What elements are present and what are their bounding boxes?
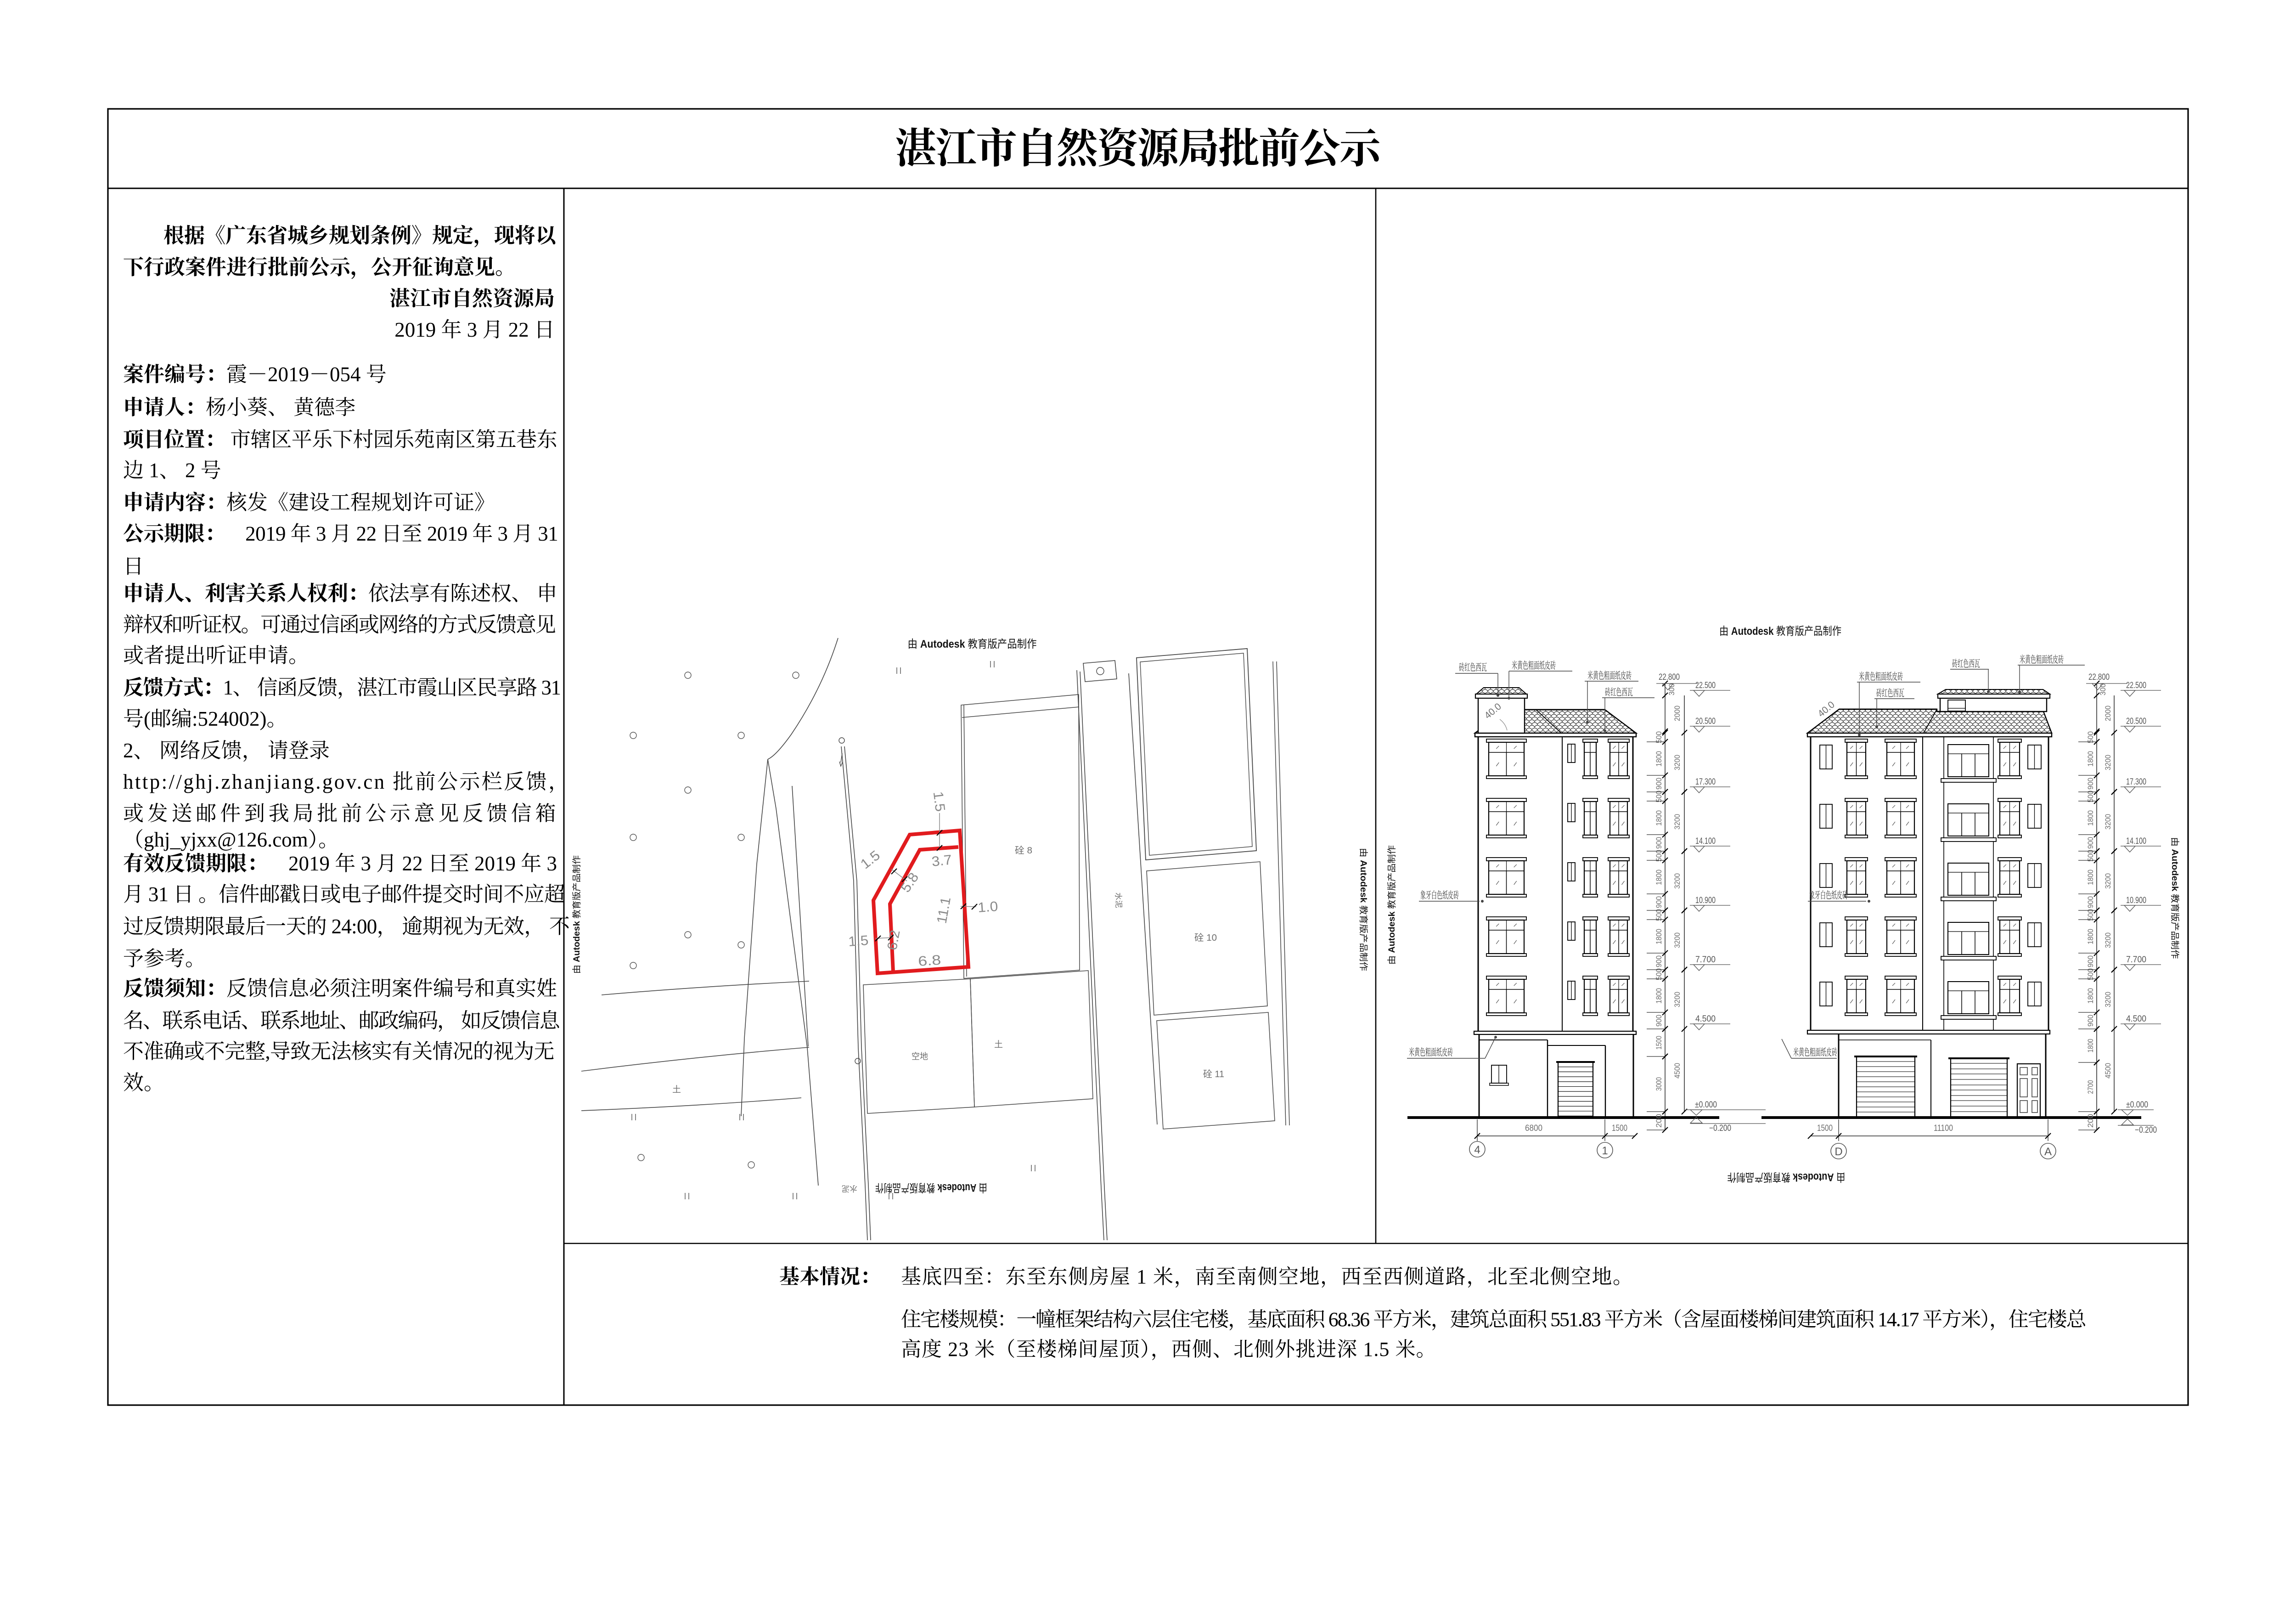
svg-text:由 Autodesk 教育版产品制作: 由 Autodesk 教育版产品制作: [1387, 845, 1397, 965]
svg-text:500: 500: [1654, 731, 1663, 743]
svg-text:由 Autodesk 教育版产品制作: 由 Autodesk 教育版产品制作: [1358, 848, 1368, 971]
svg-text:由 Autodesk 教育版产品制作: 由 Autodesk 教育版产品制作: [1719, 625, 1841, 638]
svg-text:300: 300: [2099, 683, 2107, 695]
svg-text:土: 土: [994, 1039, 1003, 1050]
svg-text:−0.200: −0.200: [2135, 1125, 2157, 1135]
svg-text:3000: 3000: [1654, 1077, 1663, 1091]
svg-text:17.300: 17.300: [1695, 777, 1716, 787]
svg-text:22.500: 22.500: [1695, 681, 1716, 690]
svg-text:空地: 空地: [912, 1051, 928, 1062]
svg-text:由 Autodesk 教育版产品制作: 由 Autodesk 教育版产品制作: [875, 1181, 987, 1194]
svg-text:砖红色西瓦: 砖红色西瓦: [1952, 658, 1980, 669]
svg-text:500: 500: [1654, 909, 1663, 921]
svg-text:米黄色粗面纸皮砖: 米黄色粗面纸皮砖: [1793, 1047, 1837, 1058]
svg-text:土: 土: [672, 1084, 681, 1095]
svg-text:1500: 1500: [1817, 1124, 1833, 1133]
svg-text:3200: 3200: [1673, 992, 1682, 1007]
svg-text:3200: 3200: [2104, 992, 2112, 1007]
svg-text:22.500: 22.500: [2126, 681, 2146, 690]
svg-text:1800: 1800: [2086, 810, 2095, 826]
svg-text:2000: 2000: [2104, 706, 2112, 721]
svg-text:1800: 1800: [2086, 870, 2095, 885]
svg-text:由 Autodesk 教育版产品制作: 由 Autodesk 教育版产品制作: [1728, 1171, 1846, 1183]
svg-text:1800: 1800: [1654, 929, 1663, 944]
svg-text:1.5: 1.5: [930, 791, 948, 813]
svg-text:7.700: 7.700: [1695, 955, 1716, 965]
svg-text:2700: 2700: [2086, 1080, 2095, 1094]
svg-text:1: 1: [1602, 1145, 1608, 1157]
svg-text:500: 500: [2086, 909, 2095, 921]
svg-text:20.500: 20.500: [1695, 717, 1716, 726]
svg-text:象牙白色纸皮砖: 象牙白色纸皮砖: [1420, 890, 1459, 901]
svg-text:3200: 3200: [2104, 932, 2112, 948]
svg-text:900: 900: [2086, 1015, 2095, 1027]
svg-text:500: 500: [1654, 850, 1663, 862]
svg-text:4: 4: [1474, 1144, 1480, 1156]
svg-text:900: 900: [1654, 837, 1663, 849]
svg-text:500: 500: [2086, 968, 2095, 980]
svg-text:200: 200: [2086, 1114, 2095, 1128]
svg-text:砖红色西瓦: 砖红色西瓦: [1459, 662, 1487, 673]
svg-text:±0.000: ±0.000: [1695, 1100, 1717, 1110]
svg-text:3200: 3200: [2104, 755, 2112, 770]
svg-text:1.5: 1.5: [858, 847, 883, 872]
svg-text:10.900: 10.900: [1695, 896, 1716, 905]
svg-text:3200: 3200: [2104, 873, 2112, 889]
svg-text:6.2: 6.2: [884, 929, 903, 951]
svg-text:砖红色西瓦: 砖红色西瓦: [1605, 687, 1633, 698]
svg-text:由 Autodesk 教育版产品制作: 由 Autodesk 教育版产品制作: [908, 638, 1037, 650]
svg-text:10.900: 10.900: [2126, 896, 2146, 905]
svg-text:14.100: 14.100: [1695, 836, 1716, 846]
svg-text:500: 500: [2086, 791, 2095, 802]
svg-text:米黄色粗面纸皮砖: 米黄色粗面纸皮砖: [1587, 670, 1632, 681]
svg-text:1.0: 1.0: [977, 899, 998, 915]
svg-text:1800: 1800: [1654, 870, 1663, 885]
svg-text:砖红色西瓦: 砖红色西瓦: [1876, 688, 1904, 699]
svg-text:1500: 1500: [1612, 1124, 1627, 1133]
svg-text:±0.000: ±0.000: [2126, 1100, 2148, 1110]
svg-text:3200: 3200: [1673, 814, 1682, 830]
svg-text:22.800: 22.800: [2088, 672, 2110, 682]
svg-text:A: A: [2044, 1146, 2052, 1158]
svg-text:5.8: 5.8: [898, 870, 922, 895]
svg-text:米黄色粗面纸皮砖: 米黄色粗面纸皮砖: [1512, 660, 1556, 671]
svg-text:3.7: 3.7: [931, 853, 952, 870]
svg-text:500: 500: [1654, 968, 1663, 980]
svg-text:−0.200: −0.200: [1709, 1124, 1731, 1133]
svg-text:500: 500: [2086, 850, 2095, 862]
svg-text:1800: 1800: [1654, 988, 1663, 1004]
svg-text:500: 500: [1654, 791, 1663, 802]
svg-text:水泥: 水泥: [842, 1184, 857, 1193]
svg-text:900: 900: [1654, 1015, 1663, 1027]
svg-text:硂 8: 硂 8: [1015, 845, 1032, 856]
svg-text:由 Autodesk 教育版产品制作: 由 Autodesk 教育版产品制作: [572, 855, 582, 974]
svg-text:1.5: 1.5: [848, 933, 869, 949]
svg-text:3200: 3200: [1673, 755, 1682, 770]
svg-text:3200: 3200: [2104, 814, 2112, 830]
svg-text:D: D: [1835, 1146, 1842, 1158]
svg-text:1800: 1800: [2086, 988, 2095, 1004]
svg-text:11.1: 11.1: [934, 896, 954, 925]
svg-text:900: 900: [2086, 778, 2095, 790]
svg-text:900: 900: [2086, 837, 2095, 849]
svg-text:象牙白色纸皮砖: 象牙白色纸皮砖: [1809, 890, 1848, 901]
svg-text:水泥: 水泥: [1114, 892, 1123, 908]
svg-text:硂 11: 硂 11: [1203, 1069, 1224, 1079]
svg-text:6800: 6800: [1525, 1124, 1542, 1133]
svg-text:4.500: 4.500: [2126, 1014, 2146, 1024]
svg-text:900: 900: [1654, 778, 1663, 790]
svg-text:20.500: 20.500: [2126, 717, 2146, 726]
svg-text:硂 10: 硂 10: [1194, 932, 1217, 943]
svg-text:900: 900: [1654, 896, 1663, 908]
svg-text:3200: 3200: [1673, 873, 1682, 889]
svg-text:米黄色粗面纸皮砖: 米黄色粗面纸皮砖: [1859, 671, 1903, 682]
svg-text:3200: 3200: [1673, 932, 1682, 948]
svg-text:1800: 1800: [2086, 751, 2095, 767]
svg-text:1800: 1800: [1654, 751, 1663, 767]
svg-text:900: 900: [1654, 955, 1663, 967]
svg-text:4.500: 4.500: [1695, 1014, 1716, 1024]
svg-text:900: 900: [2086, 896, 2095, 908]
svg-text:500: 500: [2086, 731, 2095, 743]
svg-text:1500: 1500: [1654, 1036, 1663, 1050]
svg-text:22.800: 22.800: [1659, 672, 1680, 682]
svg-text:1800: 1800: [2086, 1039, 2095, 1053]
svg-text:7.700: 7.700: [2126, 955, 2146, 965]
svg-text:米黄色粗面纸皮砖: 米黄色粗面纸皮砖: [1409, 1047, 1453, 1058]
svg-text:200: 200: [1654, 1114, 1663, 1128]
svg-text:4500: 4500: [2104, 1063, 2112, 1079]
svg-text:11100: 11100: [1934, 1124, 1953, 1133]
svg-text:900: 900: [2086, 955, 2095, 967]
svg-text:17.300: 17.300: [2126, 777, 2146, 787]
svg-text:1800: 1800: [2086, 929, 2095, 944]
svg-text:1800: 1800: [1654, 810, 1663, 826]
svg-text:2000: 2000: [1673, 706, 1682, 721]
svg-text:6.8: 6.8: [917, 953, 941, 969]
svg-text:米黄色粗面纸皮砖: 米黄色粗面纸皮砖: [2020, 654, 2064, 665]
svg-text:4500: 4500: [1673, 1063, 1682, 1079]
svg-text:14.100: 14.100: [2126, 836, 2146, 846]
svg-text:由 Autodesk 教育版产品制作: 由 Autodesk 教育版产品制作: [2170, 837, 2180, 959]
